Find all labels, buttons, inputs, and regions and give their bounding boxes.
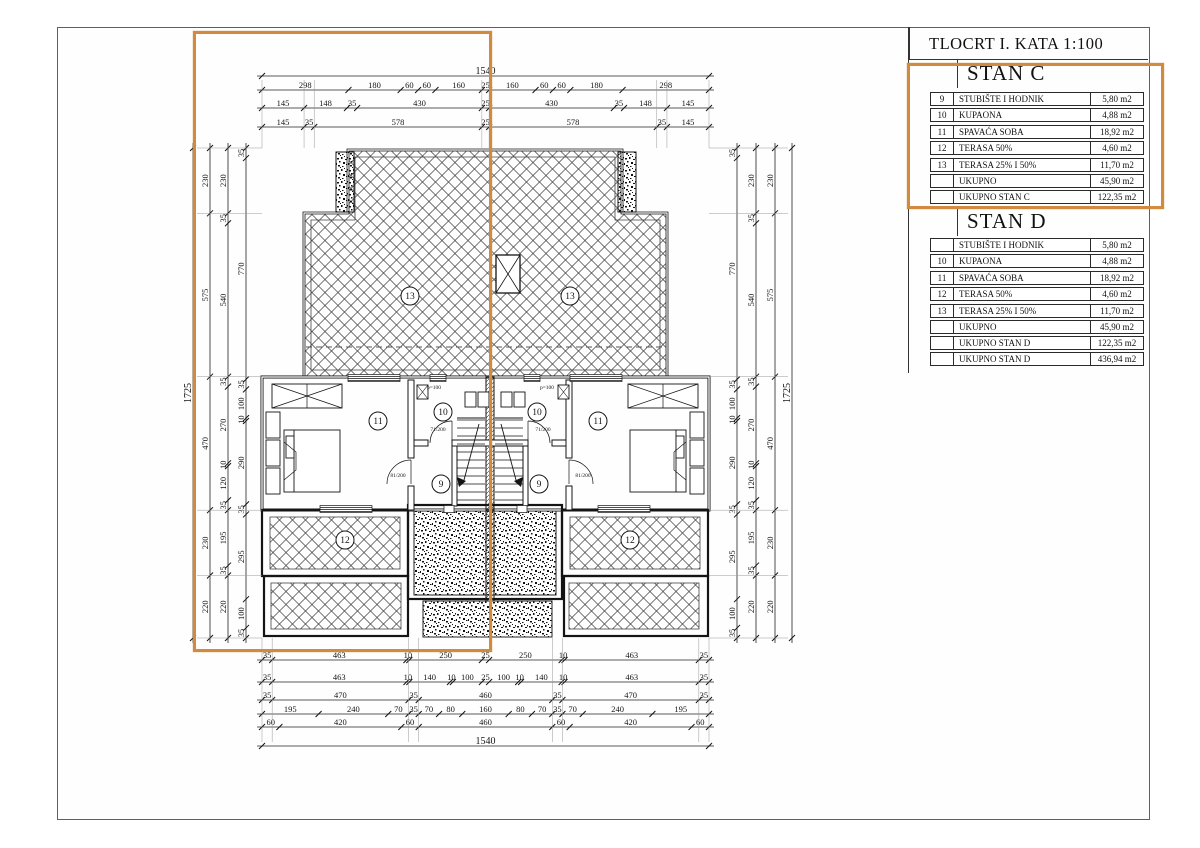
dim-label: 35 (553, 704, 562, 714)
dim-label: 195 (674, 704, 687, 714)
dim-label: 35 (263, 690, 272, 700)
table-cell: 11 (931, 272, 954, 284)
table-row: STUBIŠTE I HODNIK5,80 m2 (930, 238, 1144, 252)
dim-label: 70 (425, 704, 434, 714)
dim-label: 420 (334, 717, 347, 727)
dim-label: 35 (615, 98, 624, 108)
dim-label: 35 (700, 672, 709, 682)
dim-label: 180 (590, 80, 603, 90)
dim-label: 100 (727, 397, 737, 410)
highlight-rectangle-stan-c (907, 63, 1164, 209)
dim-label: 298 (659, 80, 672, 90)
dim-label: 35 (727, 380, 737, 389)
dim-label: 250 (519, 650, 532, 660)
dim-label: 10 (727, 415, 737, 424)
dim-label: 60 (696, 717, 705, 727)
dim-label: 240 (347, 704, 360, 714)
stan-d-header: STAN D (957, 208, 1148, 236)
dim-label: 35 (700, 690, 709, 700)
dim-label: 25 (481, 672, 490, 682)
dim-label: 148 (639, 98, 652, 108)
dim-label: 100 (727, 607, 737, 620)
dim-label: 80 (516, 704, 525, 714)
table-row: 10KUPAONA4,88 m2 (930, 254, 1144, 268)
dim-label: 140 (423, 672, 436, 682)
dim-label: 295 (727, 550, 737, 563)
dim-label: 60 (406, 717, 415, 727)
dim-label: 35 (263, 672, 272, 682)
table-cell: 436,94 m2 (1091, 353, 1143, 365)
dim-label: 220 (746, 600, 756, 613)
table-row: UKUPNO STAN D436,94 m2 (930, 352, 1144, 366)
dim-label: 195 (746, 531, 756, 544)
dim-label: 100 (461, 672, 474, 682)
dim-label: 230 (765, 174, 775, 187)
dim-label: 578 (567, 117, 580, 127)
table-cell: 4,60 m2 (1091, 288, 1143, 300)
dim-label: 230 (746, 174, 756, 187)
dim-label: 10 (559, 650, 568, 660)
room-number: 11 (593, 417, 602, 427)
annotation-label: 81/200 (575, 473, 591, 479)
table-cell: UKUPNO (954, 321, 1091, 333)
table-cell: KUPAONA (954, 255, 1091, 267)
dim-label: 10 (746, 460, 756, 469)
dim-label: 60 (557, 80, 566, 90)
dim-label: 35 (746, 214, 756, 223)
dim-label: 1725 (782, 383, 793, 403)
dim-label: 160 (479, 704, 492, 714)
table-cell: UKUPNO STAN D (954, 353, 1091, 365)
room-number: 9 (537, 480, 542, 490)
table-row: UKUPNO45,90 m2 (930, 320, 1144, 334)
building-total-table: UKUPNO STAN D436,94 m2 (930, 352, 1144, 368)
dim-label: 10 (515, 672, 524, 682)
table-cell: SPAVAĆA SOBA (954, 272, 1091, 284)
table-cell (931, 239, 954, 251)
dim-label: 70 (538, 704, 547, 714)
table-cell (931, 337, 954, 349)
dim-label: 195 (284, 704, 297, 714)
table-cell: 4,88 m2 (1091, 255, 1143, 267)
dim-label: 470 (765, 437, 775, 450)
table-row: 11SPAVAĆA SOBA18,92 m2 (930, 271, 1144, 285)
dim-label: 70 (394, 704, 403, 714)
dim-label: 35 (746, 501, 756, 510)
dim-label: 145 (682, 98, 695, 108)
stan-d-table: STUBIŠTE I HODNIK5,80 m210KUPAONA4,88 m2… (930, 238, 1144, 353)
dim-label: 1540 (476, 736, 496, 747)
dim-label: 240 (611, 704, 624, 714)
table-cell: 122,35 m2 (1091, 337, 1143, 349)
dim-label: 60 (557, 717, 566, 727)
table-cell: 13 (931, 305, 954, 317)
room-number: 13 (565, 292, 575, 302)
sheet-title: TLOCRT I. KATA 1:100 (909, 27, 1148, 60)
dim-label: 430 (545, 98, 558, 108)
room-number: 12 (625, 536, 635, 546)
dim-label: 10 (447, 672, 456, 682)
table-cell: 12 (931, 288, 954, 300)
dim-label: 463 (333, 672, 346, 682)
dim-label: 120 (746, 477, 756, 490)
table-cell: UKUPNO STAN D (954, 337, 1091, 349)
dim-label: 460 (479, 717, 492, 727)
dim-label: 220 (765, 600, 775, 613)
dim-label: 100 (497, 672, 510, 682)
dim-label: 60 (540, 80, 549, 90)
dim-label: 463 (625, 672, 638, 682)
dim-label: 35 (727, 149, 737, 158)
dim-label: 35 (409, 704, 418, 714)
dim-label: 770 (727, 262, 737, 275)
table-cell: 5,80 m2 (1091, 239, 1143, 251)
dim-label: 540 (746, 294, 756, 307)
table-row: 12TERASA 50%4,60 m2 (930, 287, 1144, 301)
dim-label: 35 (746, 377, 756, 386)
table-cell: 10 (931, 255, 954, 267)
dim-label: 463 (625, 650, 638, 660)
table-cell: TERASA 50% (954, 288, 1091, 300)
annotation-label: p=100 (540, 385, 554, 391)
dim-label: 270 (746, 419, 756, 432)
dim-label: 470 (624, 690, 637, 700)
dim-label: 35 (727, 629, 737, 638)
dim-label: 35 (409, 690, 418, 700)
dim-label: 35 (700, 650, 709, 660)
dim-label: 160 (506, 80, 519, 90)
table-cell: 45,90 m2 (1091, 321, 1143, 333)
dim-label: 35 (746, 566, 756, 575)
table-cell: 11,70 m2 (1091, 305, 1143, 317)
table-row: 13TERASA 25% I 50%11,70 m2 (930, 304, 1144, 318)
dim-label: 35 (658, 117, 667, 127)
dim-label: 140 (535, 672, 548, 682)
scanned-floor-plan-page: 1540298180606016025160606018029814514835… (0, 0, 1200, 848)
dim-label: 460 (479, 690, 492, 700)
table-cell: TERASA 25% I 50% (954, 305, 1091, 317)
table-row: UKUPNO STAN D122,35 m2 (930, 336, 1144, 350)
dim-label: 10 (559, 672, 568, 682)
dim-label: 145 (682, 117, 695, 127)
dim-label: 10 (404, 672, 413, 682)
table-cell: STUBIŠTE I HODNIK (954, 239, 1091, 251)
dim-label: 70 (568, 704, 577, 714)
table-cell (931, 353, 954, 365)
dim-label: 60 (266, 717, 275, 727)
dim-label: 35 (727, 505, 737, 513)
highlight-rectangle-plan (193, 31, 492, 652)
dim-label: 35 (553, 690, 562, 700)
annotation-label: 71/200 (535, 427, 551, 433)
dim-label: 290 (727, 456, 737, 469)
dim-label: 420 (624, 717, 637, 727)
room-number: 10 (532, 408, 542, 418)
table-cell: 18,92 m2 (1091, 272, 1143, 284)
dim-label: 575 (765, 289, 775, 302)
table-cell (931, 321, 954, 333)
dim-label: 80 (446, 704, 455, 714)
dim-label: 230 (765, 536, 775, 549)
dim-label: 470 (334, 690, 347, 700)
